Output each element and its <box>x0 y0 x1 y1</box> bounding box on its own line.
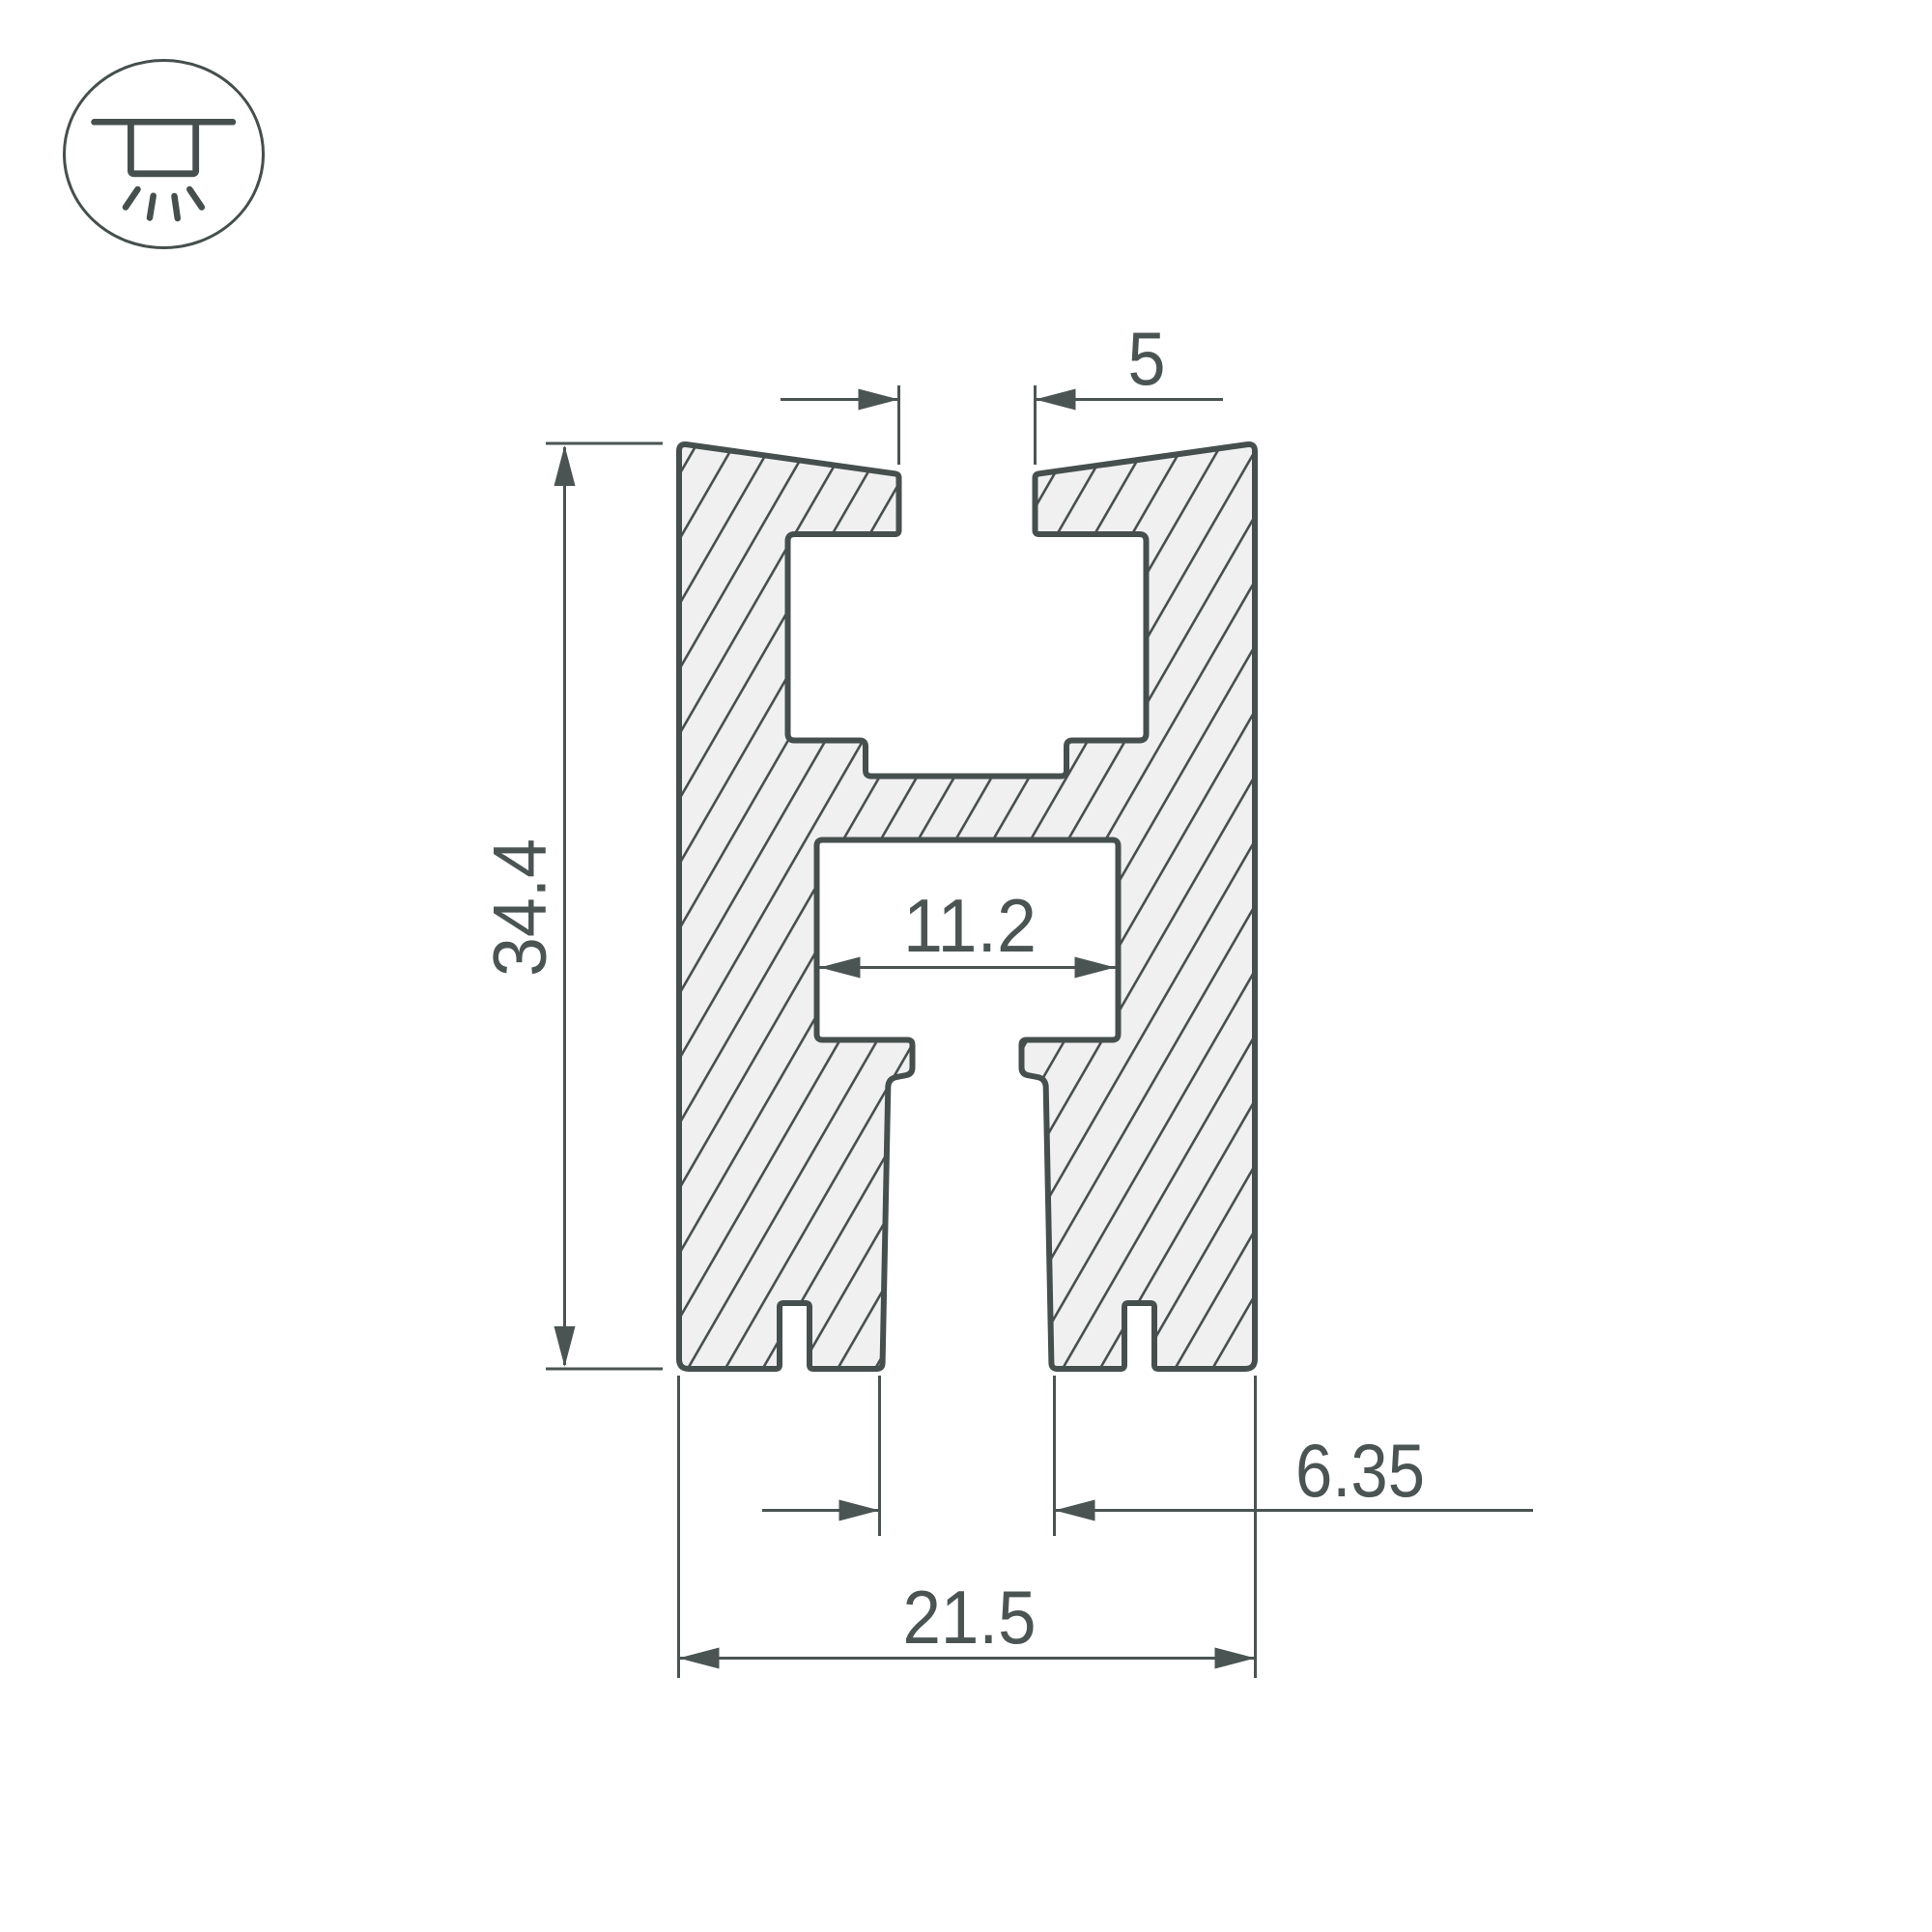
svg-text:34.4: 34.4 <box>477 838 562 977</box>
svg-text:6.35: 6.35 <box>1295 1428 1425 1513</box>
svg-text:11.2: 11.2 <box>903 883 1037 968</box>
svg-text:21.5: 21.5 <box>903 1575 1037 1660</box>
svg-text:5: 5 <box>1128 316 1166 401</box>
